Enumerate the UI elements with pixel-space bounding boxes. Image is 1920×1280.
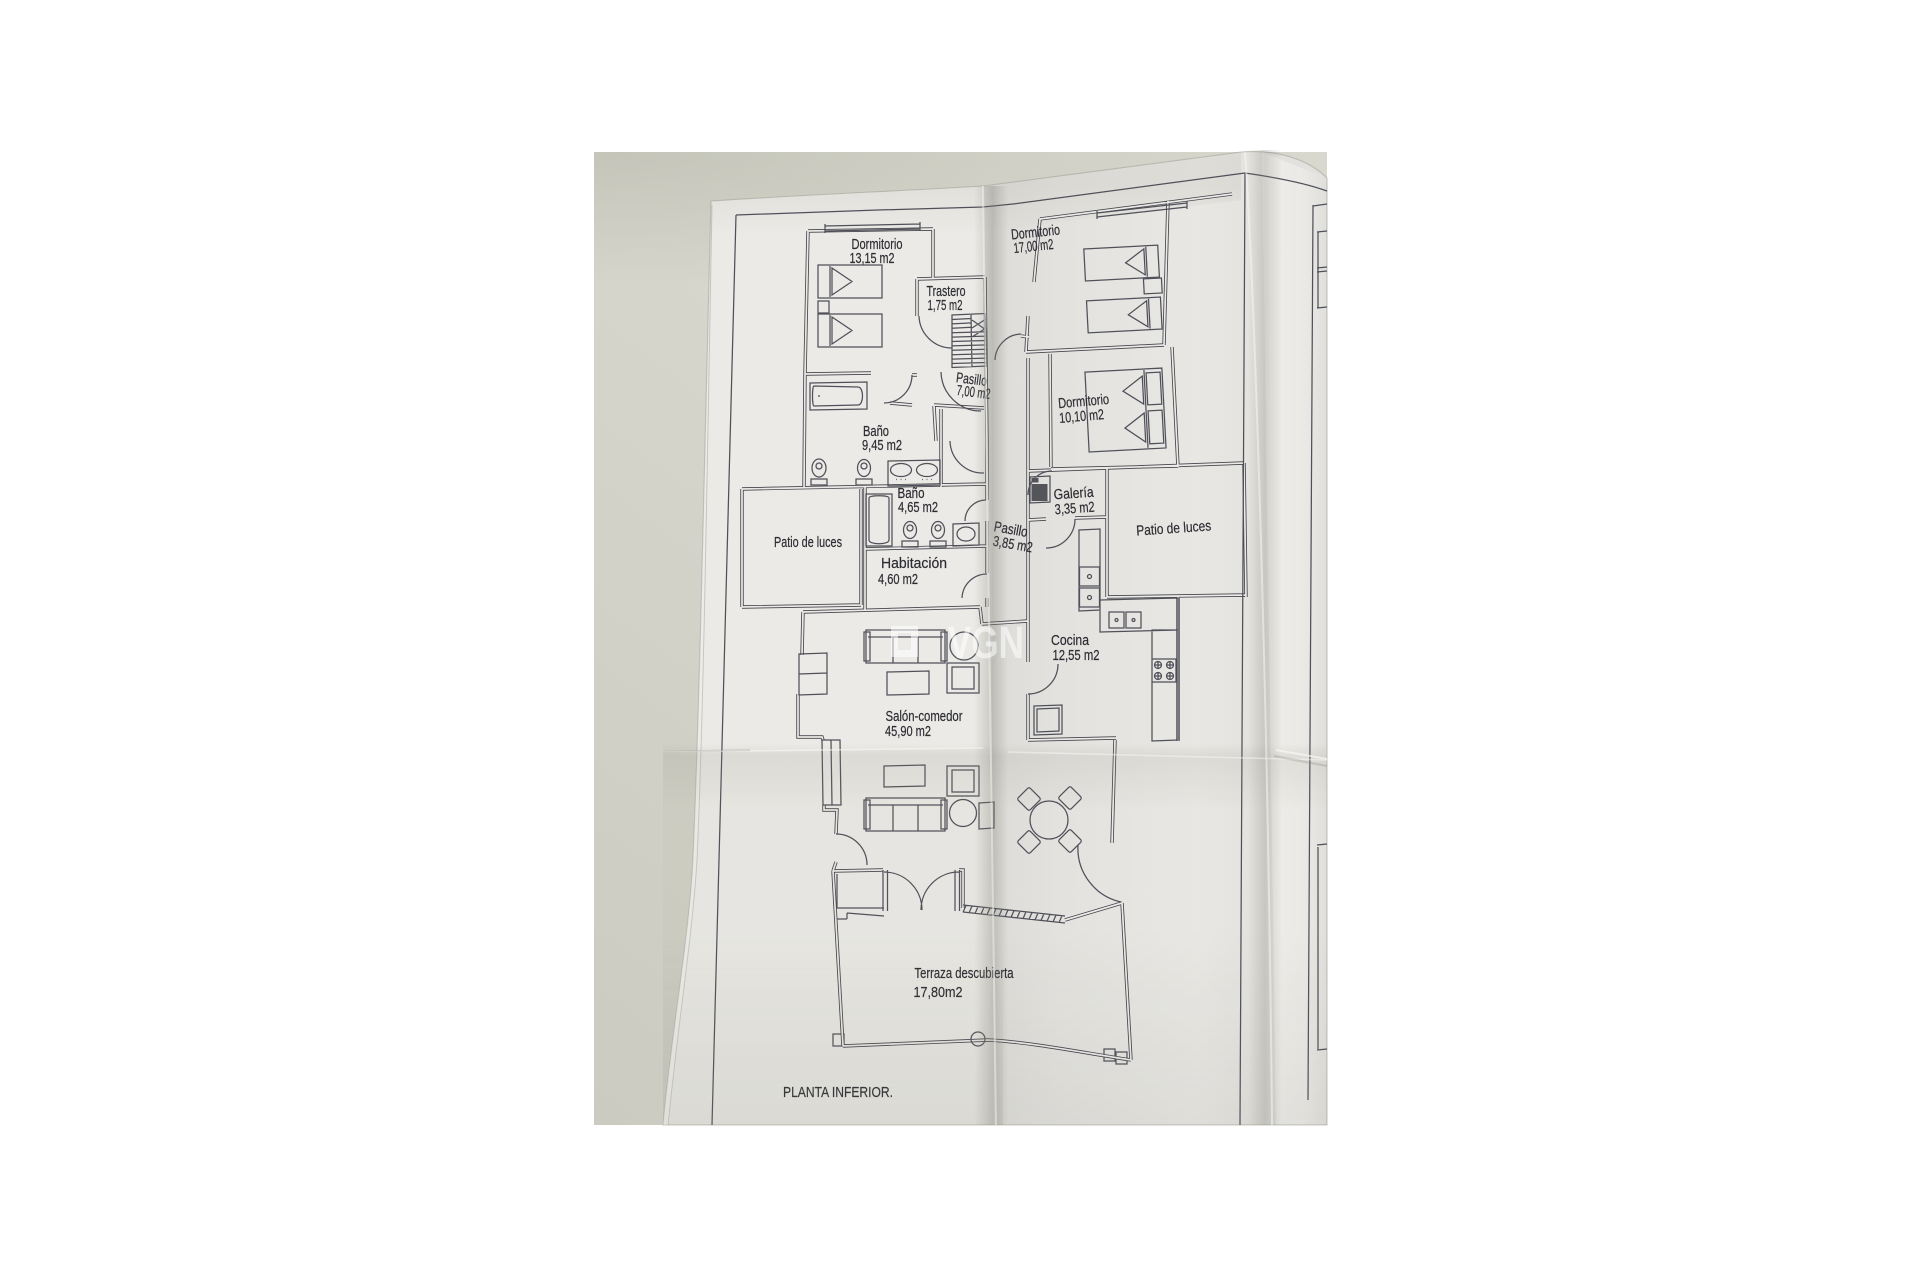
svg-text:Habitación: Habitación [881, 556, 947, 572]
svg-text:Patio de luces: Patio de luces [774, 535, 842, 551]
svg-text:4,65 m2: 4,65 m2 [898, 500, 938, 516]
svg-text:VGN: VGN [948, 617, 1024, 668]
svg-text:1,75 m2: 1,75 m2 [928, 298, 963, 314]
svg-text:13,15 m2: 13,15 m2 [850, 251, 895, 267]
svg-text:Salón-comedor: Salón-comedor [886, 709, 963, 725]
svg-text:3,35 m2: 3,35 m2 [1054, 500, 1095, 519]
svg-text:Cocina: Cocina [1051, 633, 1090, 649]
svg-text:9,45 m2: 9,45 m2 [862, 438, 902, 454]
svg-text:12,55 m2: 12,55 m2 [1053, 648, 1100, 664]
svg-text:45,90 m2: 45,90 m2 [885, 724, 931, 740]
svg-text:4,60 m2: 4,60 m2 [878, 572, 918, 588]
